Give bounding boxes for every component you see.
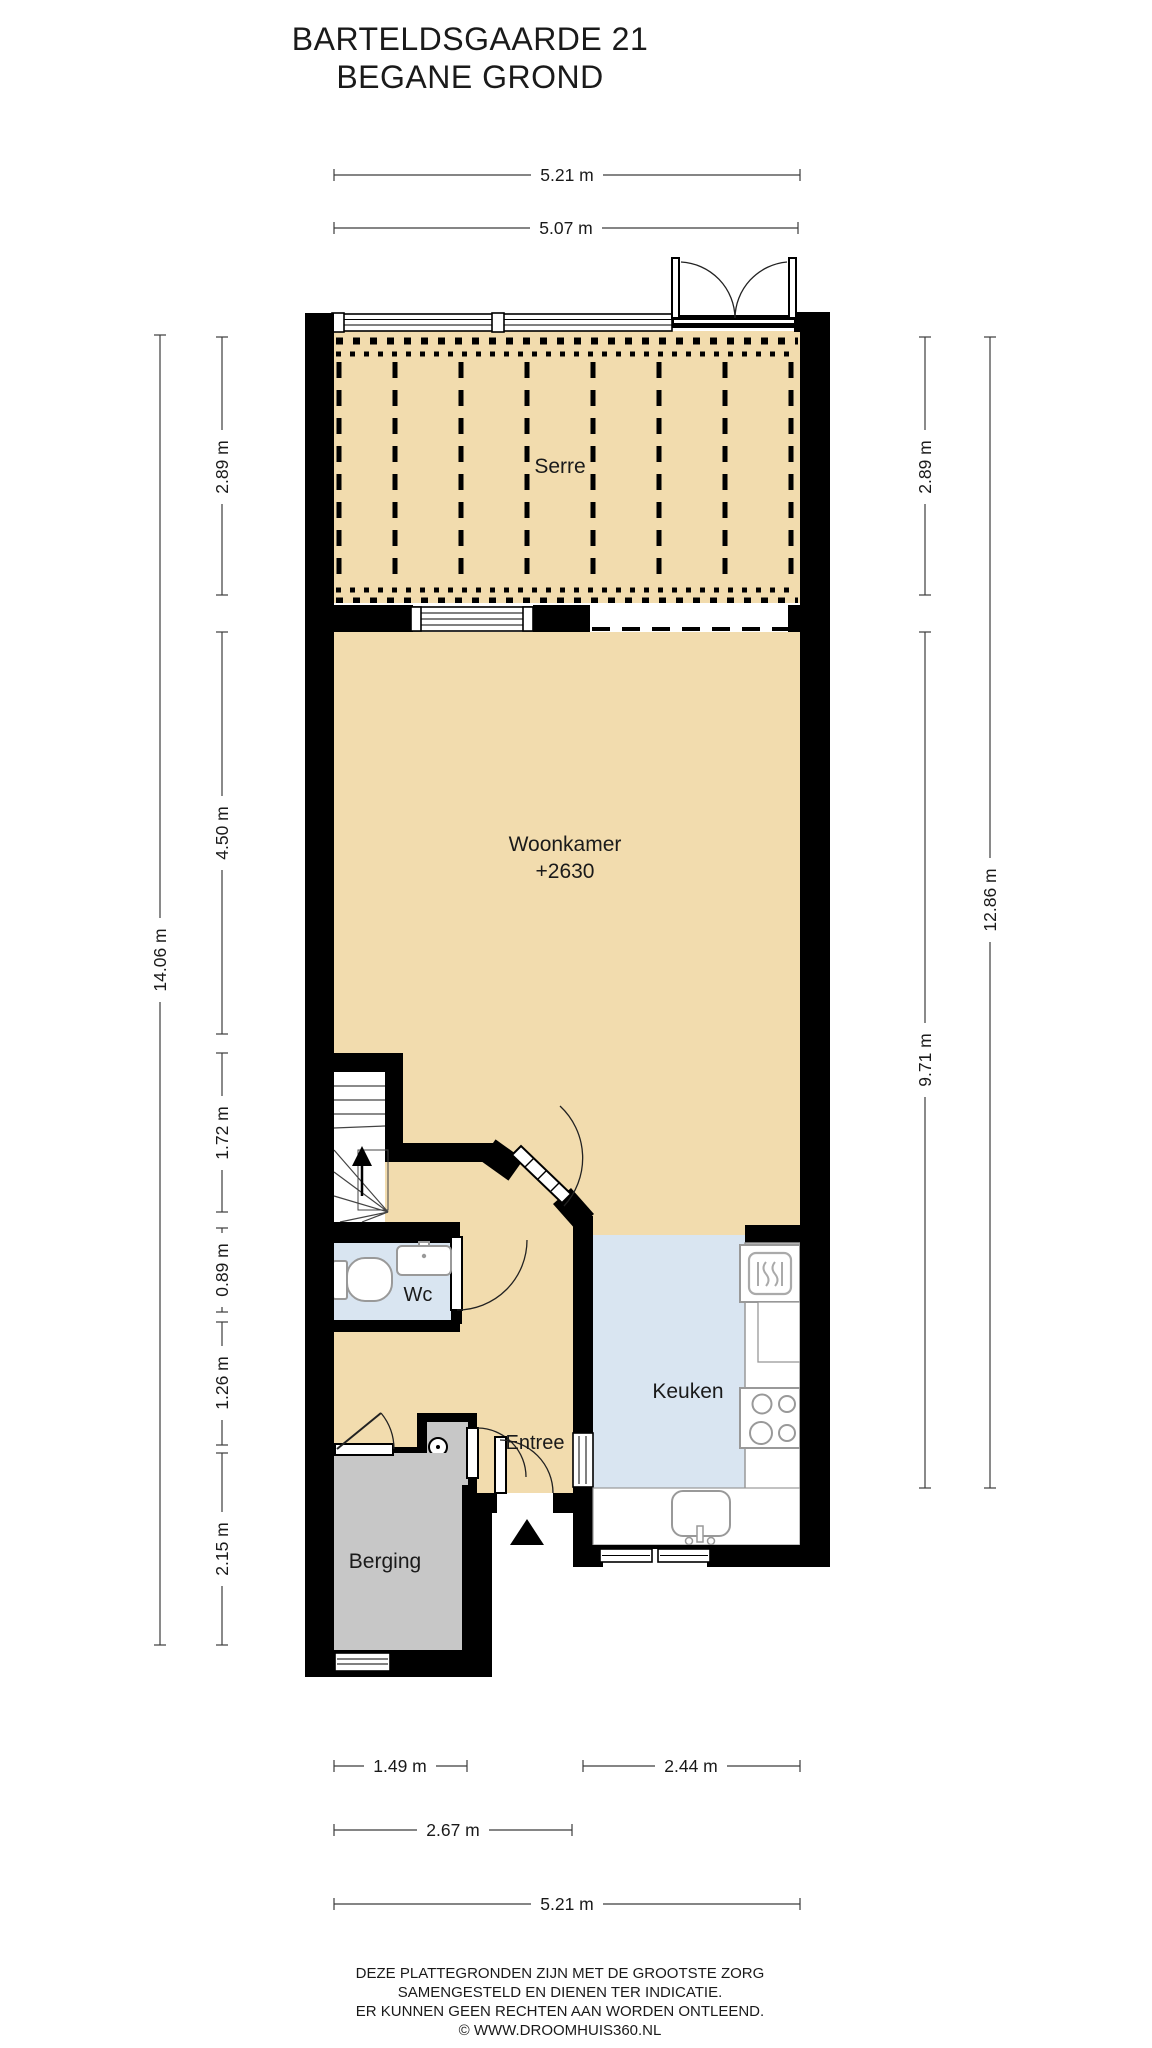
- dimension-label: 0.89 m: [212, 1243, 232, 1297]
- dimension-label: 1.26 m: [212, 1356, 232, 1410]
- garden-double-door: [672, 258, 796, 318]
- kitchen-sink-icon: [672, 1491, 730, 1545]
- dimension-label: 4.50 m: [212, 806, 232, 860]
- footer-line-2: SAMENGESTELD EN DIENEN TER INDICATIE.: [398, 1984, 723, 2001]
- title-line-2: BEGANE GROND: [336, 59, 603, 95]
- dimension-label: 2.67 m: [426, 1820, 480, 1840]
- window-mullion: [492, 313, 504, 332]
- dimension-label: 2.89 m: [212, 440, 232, 494]
- dimension-label: 12.86 m: [980, 868, 1000, 931]
- floorplan-canvas: BARTELDSGAARDE 21 BEGANE GROND Serre Woo…: [0, 0, 1152, 2048]
- dimension-label: 1.49 m: [373, 1756, 427, 1776]
- room-label-wc: Wc: [404, 1284, 433, 1306]
- entrance-arrow-icon: [510, 1519, 544, 1545]
- berging-door: [335, 1444, 393, 1455]
- wc-sink-icon: [397, 1242, 451, 1275]
- dimension-right-971: 9.71 m: [914, 632, 936, 1488]
- dimension-left-172: 1.72 m: [211, 1053, 233, 1212]
- dimension-left-215: 2.15 m: [211, 1453, 233, 1645]
- dimension-label: 2.15 m: [212, 1522, 232, 1576]
- dimension-left-450: 4.50 m: [211, 632, 233, 1034]
- right-wall: [800, 312, 830, 1567]
- toilet-icon: [333, 1258, 392, 1301]
- dimension-label: 2.89 m: [915, 440, 935, 494]
- dimension-bottom-267: 2.67 m: [334, 1819, 572, 1841]
- dimension-left-126: 1.26 m: [211, 1322, 233, 1445]
- dimension-label: 5.21 m: [540, 165, 594, 185]
- dimension-bottom-244: 2.44 m: [583, 1755, 800, 1777]
- dimension-label: 5.21 m: [540, 1894, 594, 1914]
- wc-door: [451, 1237, 462, 1310]
- dimension-left-1406: 14.06 m: [149, 335, 171, 1645]
- dimension-label: 2.44 m: [664, 1756, 718, 1776]
- footer-line-3: ER KUNNEN GEEN RECHTEN AAN WORDEN ONTLEE…: [356, 2003, 764, 2020]
- serre-woonkamer-divider: [334, 605, 810, 632]
- dimension-left-089: 0.89 m: [211, 1228, 233, 1312]
- room-label-entree: Entree: [506, 1432, 565, 1454]
- footer-line-1: DEZE PLATTEGRONDEN ZIJN MET DE GROOTSTE …: [356, 1965, 765, 1982]
- room-label-berging: Berging: [349, 1550, 421, 1573]
- footer-disclaimer: DEZE PLATTEGRONDEN ZIJN MET DE GROOTSTE …: [356, 1965, 765, 2039]
- dimension-bottom-149: 1.49 m: [334, 1755, 467, 1777]
- room-sublabel-woonkamer: +2630: [536, 860, 595, 883]
- front-door: [495, 1437, 506, 1493]
- meterkast-door: [467, 1428, 478, 1478]
- dimension-label: 1.72 m: [212, 1106, 232, 1160]
- room-label-serre: Serre: [534, 455, 585, 478]
- dimension-top-521: 5.21 m: [334, 164, 800, 186]
- entree-side-window: [573, 1433, 593, 1487]
- floorplan-page: BARTELDSGAARDE 21 BEGANE GROND Serre Woo…: [0, 0, 1152, 2048]
- title-line-1: BARTELDSGAARDE 21: [292, 21, 648, 57]
- dimension-bottom-521: 5.21 m: [334, 1893, 800, 1915]
- berging-window: [335, 1653, 390, 1671]
- room-label-keuken: Keuken: [652, 1380, 723, 1403]
- dimension-right-289: 2.89 m: [914, 337, 936, 595]
- dimension-label: 14.06 m: [150, 928, 170, 991]
- room-keuken: Keuken: [573, 1216, 830, 1567]
- dimension-right-1286: 12.86 m: [979, 337, 1001, 1488]
- room-label-woonkamer: Woonkamer: [509, 833, 622, 856]
- dimension-label: 5.07 m: [539, 218, 593, 238]
- page-title: BARTELDSGAARDE 21 BEGANE GROND: [292, 21, 648, 95]
- serre-top-facade: [332, 258, 804, 332]
- dimension-left-289: 2.89 m: [211, 337, 233, 595]
- footer-line-4: © WWW.DROOMHUIS360.NL: [459, 2022, 662, 2039]
- stove-icon: [740, 1388, 800, 1448]
- dimension-label: 9.71 m: [915, 1033, 935, 1087]
- room-serre: Serre: [334, 331, 800, 603]
- dimension-top-507: 5.07 m: [334, 217, 798, 239]
- left-wall: [305, 313, 334, 1677]
